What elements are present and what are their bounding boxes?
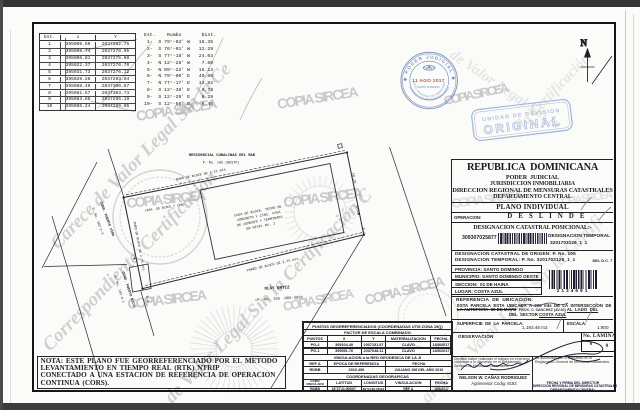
svg-text:11 AGO 2017: 11 AGO 2017: [412, 78, 444, 84]
svg-text:SANTO DOMINGO: SANTO DOMINGO: [417, 85, 439, 89]
